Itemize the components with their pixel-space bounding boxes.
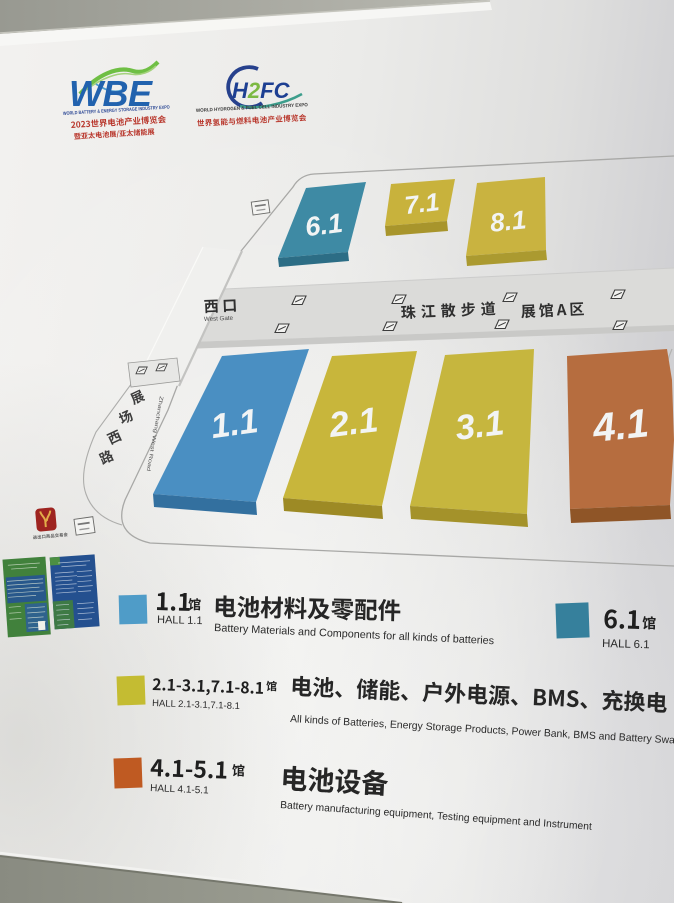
svg-text:7.1: 7.1: [403, 188, 441, 220]
svg-text:6.1: 6.1: [303, 208, 344, 242]
svg-text:1.1: 1.1: [208, 402, 260, 446]
svg-text:4.1: 4.1: [590, 401, 651, 451]
svg-text:HALL 1.1: HALL 1.1: [157, 614, 203, 627]
svg-text:HALL 6.1: HALL 6.1: [602, 638, 650, 651]
svg-text:3.1: 3.1: [453, 403, 506, 448]
svg-text:West Gate: West Gate: [204, 315, 234, 323]
svg-text:2.1: 2.1: [326, 400, 380, 445]
svg-text:8.1: 8.1: [489, 204, 528, 238]
svg-text:H2FC: H2FC: [232, 78, 291, 103]
